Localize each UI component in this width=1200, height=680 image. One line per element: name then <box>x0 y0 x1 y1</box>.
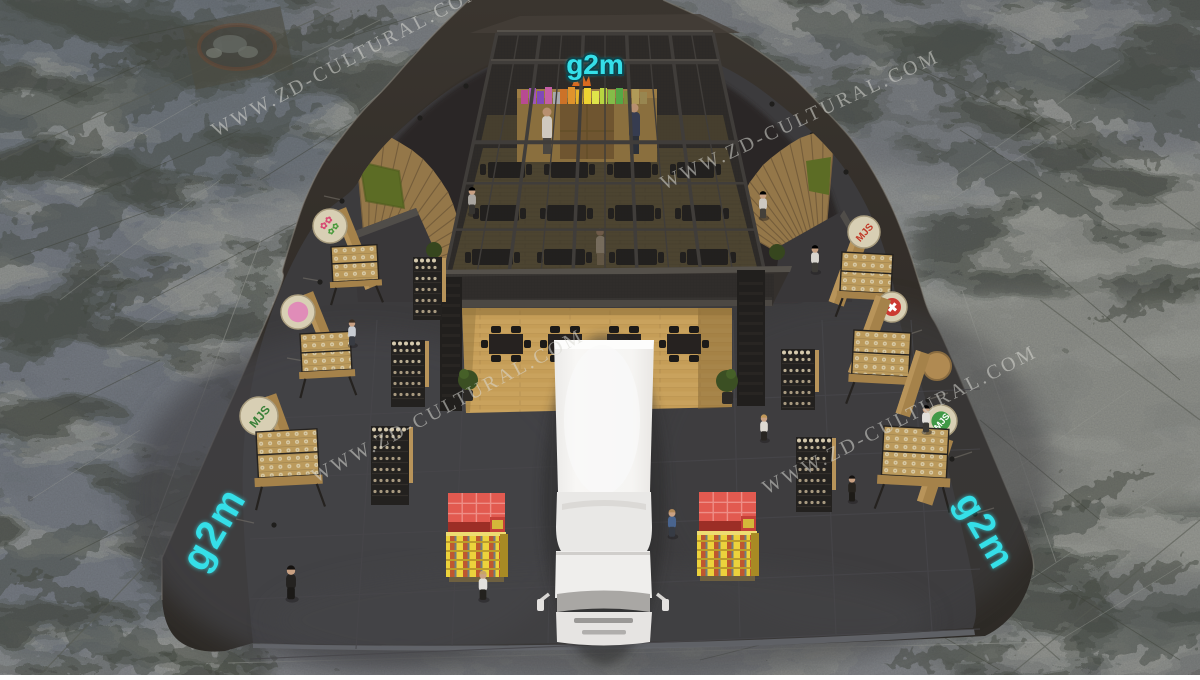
svg-text:g2m: g2m <box>566 49 624 80</box>
